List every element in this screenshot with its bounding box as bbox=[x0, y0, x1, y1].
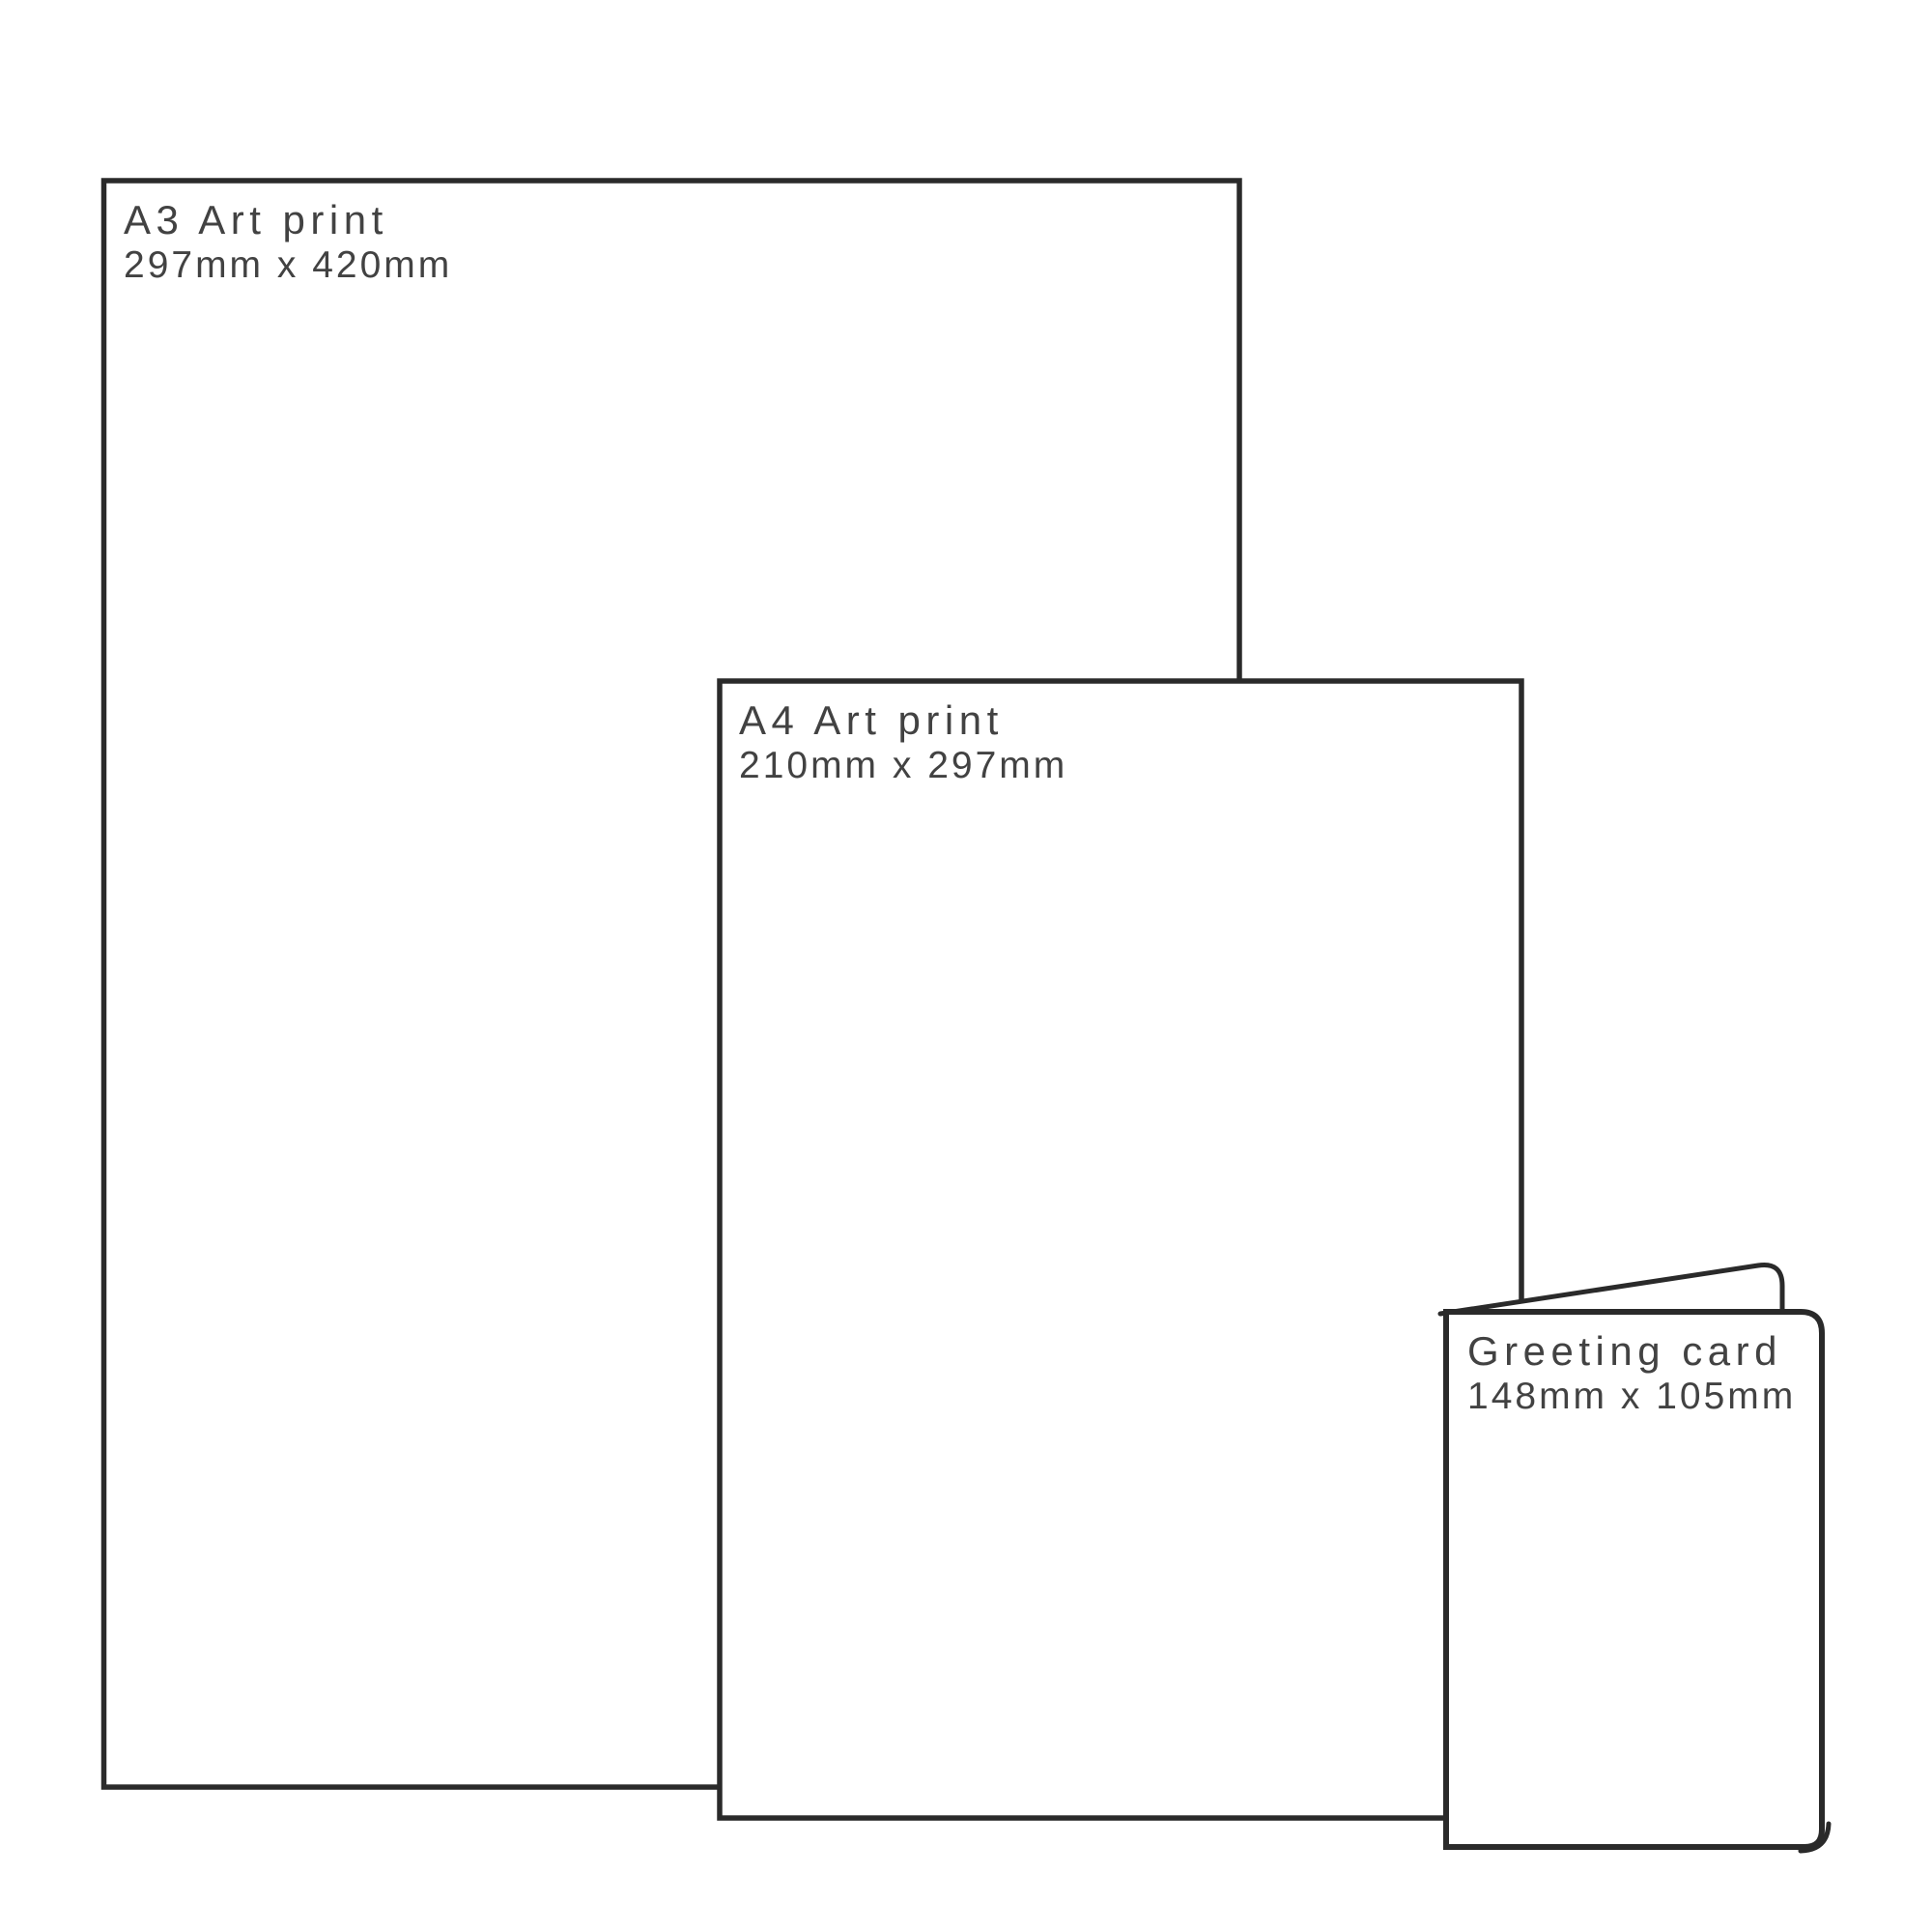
diagram-canvas: A3 Art print 297mm x 420mm A4 Art print … bbox=[0, 0, 1932, 1932]
a3-title: A3 Art print bbox=[124, 197, 388, 242]
a4-sheet-outline bbox=[720, 681, 1521, 1818]
a4-title: A4 Art print bbox=[739, 697, 1004, 743]
a3-dimensions: 297mm x 420mm bbox=[124, 244, 452, 286]
greeting-card-title: Greeting card bbox=[1467, 1328, 1782, 1374]
size-comparison-diagram: A3 Art print 297mm x 420mm A4 Art print … bbox=[0, 0, 1932, 1932]
greeting-card-shape: Greeting card 148mm x 105mm bbox=[1440, 1264, 1829, 1851]
a4-dimensions: 210mm x 297mm bbox=[739, 745, 1067, 786]
greeting-card-dimensions: 148mm x 105mm bbox=[1467, 1376, 1796, 1417]
